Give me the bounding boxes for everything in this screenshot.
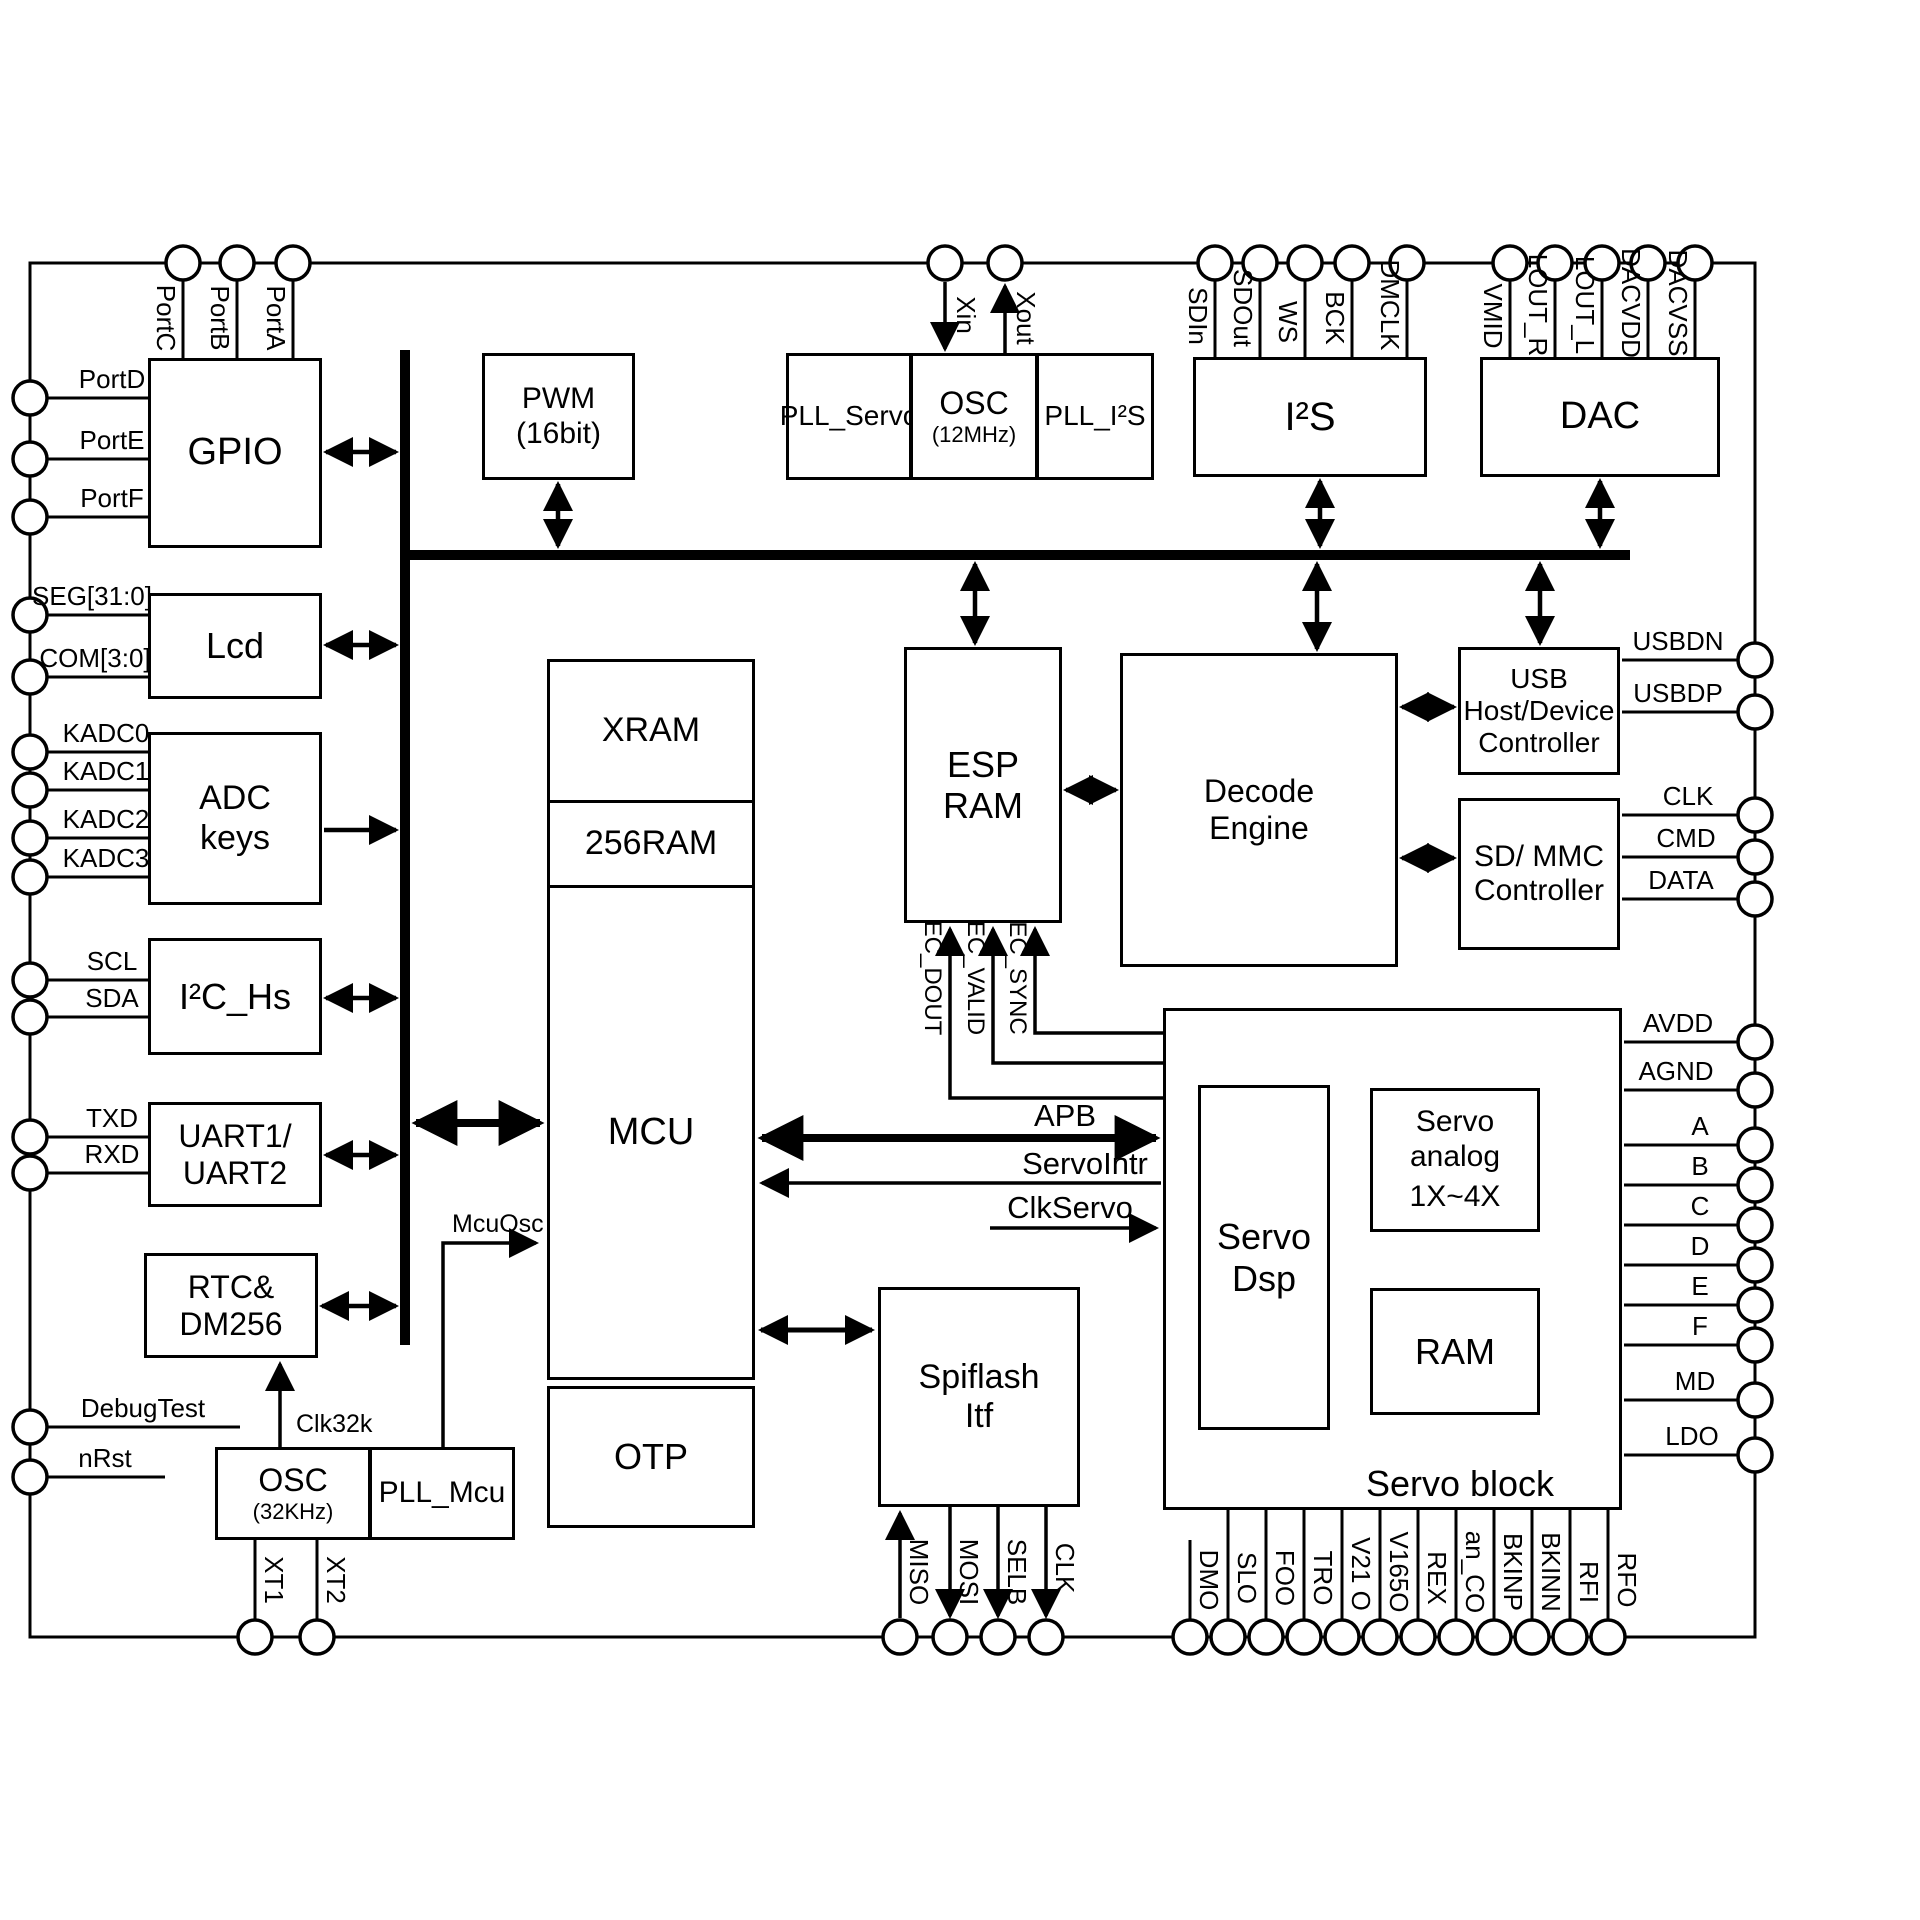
pin-label-sda: SDA [85,985,138,1011]
pin-rex [1401,1620,1435,1654]
pin-label-xout: Xout [1013,291,1039,345]
pin-label-c: C [1691,1193,1710,1219]
pin-label-sdout: SDOut [1230,269,1256,347]
pin-label-debugtest: DebugTest [81,1395,205,1421]
mcu-block: MCU [547,885,755,1380]
usb-controller-block: USB Host/Device Controller [1458,647,1620,775]
pin-label-bkinp: BKINP [1500,1533,1526,1611]
pin-usbdp [1738,695,1772,729]
pin-md [1738,1383,1772,1417]
adc-keys-block: ADC keys [148,732,322,905]
pin-kadc2 [13,821,47,855]
pin-xt1 [238,1620,272,1654]
esp-ram-block: ESP RAM [904,647,1062,923]
pin-porte [13,442,47,476]
pin-a [1738,1128,1772,1162]
pin-miso [883,1620,917,1654]
pin-label-kadc1: KADC1 [63,758,150,784]
pin-label-dacvss: DACVSS [1665,250,1691,357]
pin-txd [13,1120,47,1154]
pin-label-rex: REX [1424,1551,1450,1604]
pin-e [1738,1288,1772,1322]
pin-label-bck: BCK [1322,291,1348,344]
mcuosc-label: McuOsc [452,1212,544,1237]
pin-label-v21o: V21 O [1348,1537,1374,1611]
pin-label-clk: CLK [1663,783,1714,809]
pin-mosi [933,1620,967,1654]
clk32k-label: Clk32k [296,1412,372,1437]
pin-ws [1288,246,1322,280]
gpio-label: GPIO [187,431,282,475]
pin-label-lout-r: LOUT_R [1525,254,1551,357]
spiflash-itf-block: Spiflash Itf [878,1287,1080,1507]
pin-label-e: E [1691,1273,1708,1299]
pll-i2s-block: PLL_I²S [1036,353,1154,480]
servo-block-label: Servo block [1366,1466,1554,1502]
pin-label-ldo: LDO [1665,1423,1718,1449]
pin-an-co [1439,1620,1473,1654]
pin-bkinp [1477,1620,1511,1654]
pin-c [1738,1208,1772,1242]
pin-label-porta: PortA [263,285,289,350]
pin-label-ws: WS [1275,301,1301,343]
pin-bkinn [1515,1620,1549,1654]
pin-label-md: MD [1675,1368,1715,1394]
xram-block: XRAM [547,659,755,803]
pin-label-an-co: an_CO [1462,1531,1488,1613]
pin-rxd [13,1156,47,1190]
servo-analog-block: Servo analog 1X~4X [1370,1088,1540,1232]
pin-label-b: B [1691,1153,1708,1179]
pin-sda [13,1000,47,1034]
otp-block: OTP [547,1386,755,1528]
pin-label-xt1: XT1 [261,1556,287,1604]
pin-portf [13,500,47,534]
uart-block: UART1/ UART2 [148,1102,322,1207]
pin-label-dacvdd: DACVDD [1618,248,1644,358]
pin-label-kadc0: KADC0 [63,720,150,746]
pin-label-scl: SCL [87,948,138,974]
pin-label-spi-clk: CLK [1052,1543,1078,1594]
pin-sd-data [1738,882,1772,916]
pin-scl [13,963,47,997]
pin-label-d: D [1691,1233,1710,1259]
i2c-hs-block: I²C_Hs [148,938,322,1055]
pin-agnd [1738,1073,1772,1107]
apb-label: APB [1034,1100,1096,1131]
pin-ldo [1738,1438,1772,1472]
ec-dout-label: EC_DOUT [920,921,944,1036]
dac-block: DAC [1480,357,1720,477]
pin-spi-clk [1029,1620,1063,1654]
sd-mmc-controller-block: SD/ MMC Controller [1458,798,1620,950]
pin-label-agnd: AGND [1638,1058,1713,1084]
pin-v165o [1363,1620,1397,1654]
pin-xin [928,246,962,280]
pwm-block: PWM (16bit) [482,353,635,480]
pin-label-com: COM[3:0] [39,645,150,671]
pin-debugtest [13,1410,47,1444]
pin-label-porte: PortE [79,427,144,453]
pin-v21o [1325,1620,1359,1654]
pin-label-usbdn: USBDN [1632,628,1723,654]
pin-label-kadc3: KADC3 [63,845,150,871]
ec-valid-label: EC_VALID [963,921,987,1035]
pin-dmo [1173,1620,1207,1654]
pin-selb [981,1620,1015,1654]
pin-label-xin: Xin [953,296,979,334]
lcd-block: Lcd [148,593,322,699]
bus-arrows-bottom [975,564,1540,649]
pin-label-seg: SEG[31:0] [32,583,152,609]
pin-label-a: A [1691,1113,1708,1139]
pin-label-cmd: CMD [1656,825,1715,851]
pin-xt2 [300,1620,334,1654]
rtc-dm256-block: RTC& DM256 [144,1253,318,1358]
pin-label-sdin: SDIn [1185,287,1211,345]
i2s-block: I²S [1193,357,1427,477]
ec-sync-label: EC_SYNC [1005,921,1029,1034]
bus-arrows-top [558,481,1600,546]
soc-block-diagram: GPIO Lcd ADC keys I²C_Hs UART1/ UART2 RT… [0,0,1920,1920]
pin-bck [1335,246,1369,280]
servointr-label: ServoIntr [1022,1148,1148,1179]
pll-mcu-block: PLL_Mcu [369,1447,515,1540]
pin-usbdn [1738,643,1772,677]
pin-label-slo: SLO [1234,1552,1260,1604]
pin-portb [220,246,254,280]
osc-32khz-block: OSC (32KHz) [215,1447,371,1540]
pin-wires-top [183,280,1695,358]
pin-kadc1 [13,773,47,807]
pin-portc [166,246,200,280]
ram256-block: 256RAM [547,800,755,888]
pin-kadc3 [13,860,47,894]
pin-label-txd: TXD [86,1105,138,1131]
pin-label-xt2: XT2 [323,1556,349,1604]
pin-label-lout-l: LOUT_L [1572,256,1598,354]
pin-tro [1287,1620,1321,1654]
pin-label-miso: MISO [906,1539,932,1605]
pin-label-f: F [1692,1313,1708,1339]
pin-vmid [1493,246,1527,280]
lcd-label: Lcd [206,625,264,666]
servo-dsp-block: Servo Dsp [1198,1085,1330,1430]
pin-d [1738,1248,1772,1282]
pll-servo-block: PLL_Servo [786,353,912,480]
clkservo-label: ClkServo [1007,1192,1133,1223]
bus-arrows-left [322,452,396,1306]
pin-label-rxd: RXD [85,1141,140,1167]
pin-label-usbdp: USBDP [1633,680,1723,706]
pin-f [1738,1328,1772,1362]
pin-xout [988,246,1022,280]
pin-sd-clk [1738,798,1772,832]
pin-foo [1249,1620,1283,1654]
pin-label-bkinn: BKINN [1538,1532,1564,1611]
pin-slo [1211,1620,1245,1654]
pin-label-portf: PortF [80,485,144,511]
pin-rfi [1553,1620,1587,1654]
pin-label-portb: PortB [207,285,233,350]
pin-label-mosi: MOSI [956,1539,982,1605]
pin-rfo [1591,1620,1625,1654]
pin-label-dmo: DMO [1196,1550,1222,1611]
pin-label-selb: SELB [1004,1539,1030,1606]
pin-label-tro: TRO [1310,1551,1336,1606]
pin-label-rfo: RFO [1614,1553,1640,1608]
pin-label-nrst: nRst [78,1445,131,1471]
servo-ram-block: RAM [1370,1288,1540,1415]
decode-engine-block: Decode Engine [1120,653,1398,967]
pin-porta [276,246,310,280]
pin-label-kadc2: KADC2 [63,806,150,832]
pin-label-portd: PortD [79,366,145,392]
pin-label-portc: PortC [153,285,179,351]
pin-label-foo: FOO [1272,1550,1298,1606]
pin-label-dmclk: DMCLK [1377,259,1403,350]
gpio-block: GPIO [148,358,322,548]
pin-label-avdd: AVDD [1643,1010,1713,1036]
pin-sd-cmd [1738,840,1772,874]
pin-b [1738,1168,1772,1202]
pin-sdin [1198,246,1232,280]
pin-portd [13,381,47,415]
pin-nrst [13,1460,47,1494]
pin-avdd [1738,1025,1772,1059]
osc-12mhz-block: OSC (12MHz) [910,353,1038,480]
pin-label-rfi: RFI [1576,1561,1602,1603]
pin-label-vmid: VMID [1480,284,1506,349]
pin-kadc0 [13,735,47,769]
pin-label-v165o: V165O [1386,1532,1412,1613]
pin-label-data: DATA [1648,867,1713,893]
